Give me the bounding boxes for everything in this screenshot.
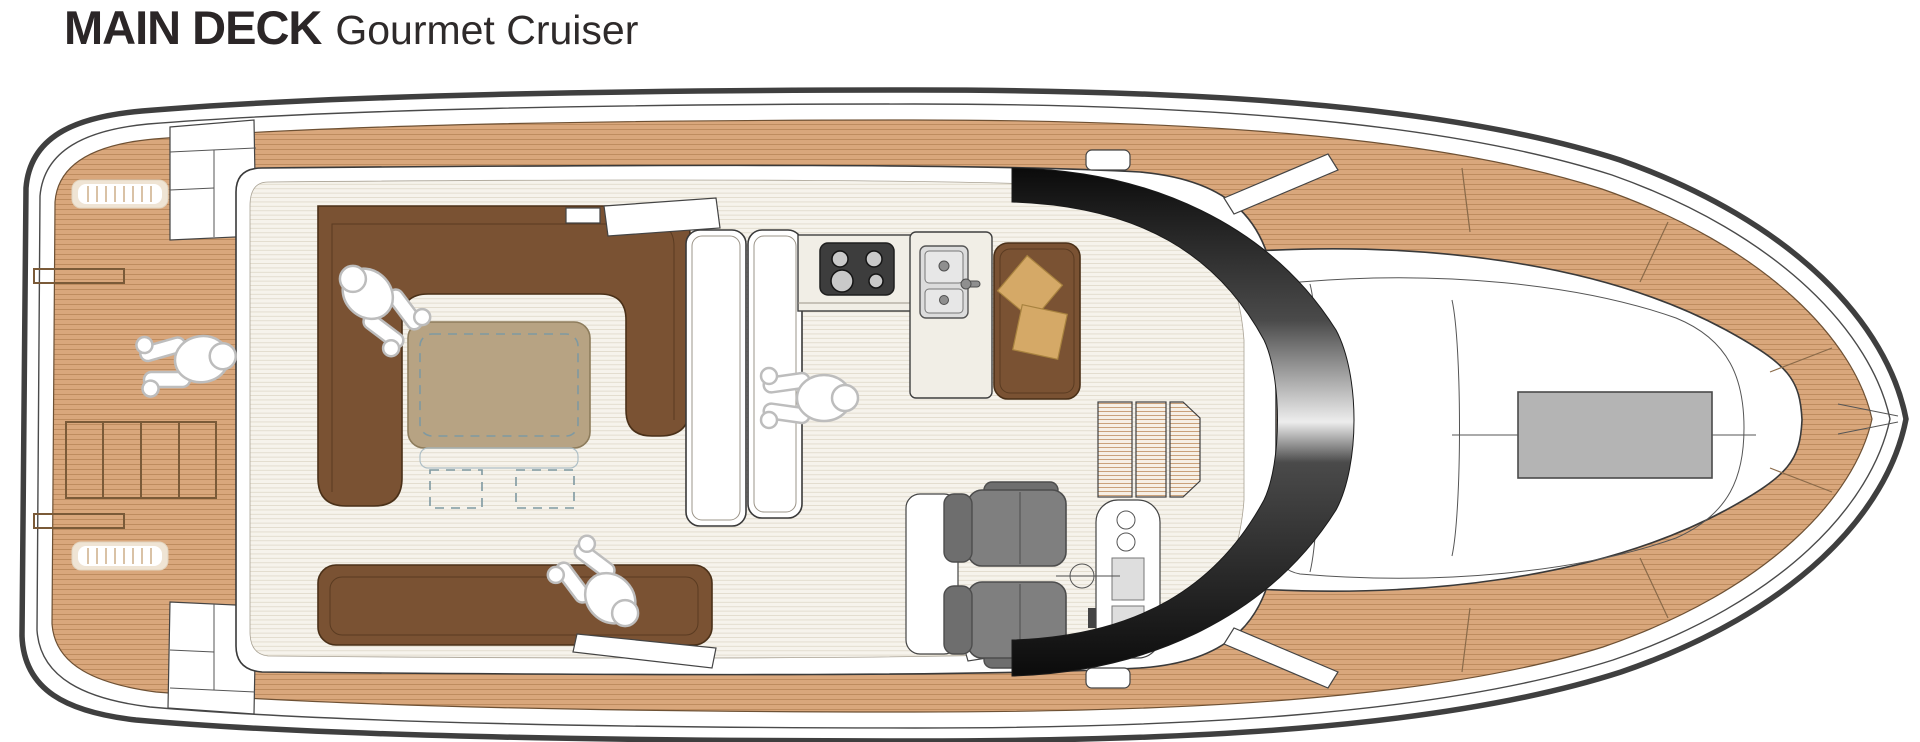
page: MAIN DECKGourmet Cruiser bbox=[0, 0, 1920, 742]
faucet-base bbox=[961, 279, 971, 289]
companionway-stairs bbox=[1098, 402, 1200, 497]
deck-grate-hatch-starboard bbox=[72, 542, 168, 570]
deck-title: MAIN DECK bbox=[64, 1, 321, 54]
throttle-lever bbox=[1088, 608, 1096, 628]
door-track-top bbox=[566, 208, 600, 223]
stove-4-burner bbox=[820, 243, 894, 295]
page-title: MAIN DECKGourmet Cruiser bbox=[64, 0, 638, 55]
deck-plan-diagram bbox=[0, 0, 1920, 742]
deck-grate-hatch-port bbox=[72, 180, 168, 208]
foredeck-hatch bbox=[1518, 392, 1712, 478]
pillow-2 bbox=[1013, 305, 1068, 360]
side-deck-cleat-port bbox=[1086, 150, 1130, 170]
settee-with-pillows bbox=[994, 243, 1080, 399]
side-deck-cleat-starboard bbox=[1086, 668, 1130, 688]
cockpit-table bbox=[408, 322, 590, 448]
galley-island-aft bbox=[686, 230, 746, 526]
display-1 bbox=[1112, 558, 1144, 600]
helm-seat-port bbox=[944, 482, 1066, 566]
deck-subtitle: Gourmet Cruiser bbox=[335, 7, 638, 53]
